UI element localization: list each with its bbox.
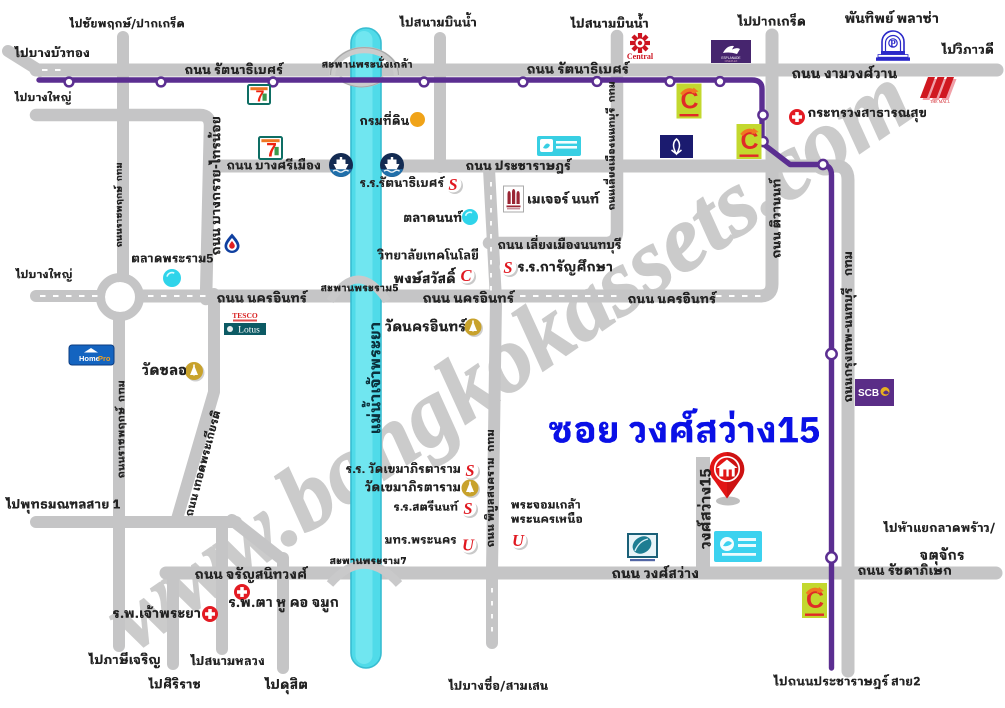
svg-text:S: S xyxy=(503,258,512,277)
svg-text:Home: Home xyxy=(79,354,100,363)
svg-text:THE MALL: THE MALL xyxy=(930,99,951,104)
svg-text:S: S xyxy=(463,499,472,518)
svg-text:C: C xyxy=(460,266,472,285)
svg-text:Central: Central xyxy=(627,52,654,61)
svg-text:CINEPLEX: CINEPLEX xyxy=(725,59,738,63)
svg-text:U: U xyxy=(462,536,475,555)
svg-text:Lotus: Lotus xyxy=(238,326,260,336)
svg-text:S: S xyxy=(448,175,457,194)
svg-text:TESCO: TESCO xyxy=(232,311,258,320)
svg-text:P: P xyxy=(890,39,896,49)
svg-text:Pro: Pro xyxy=(98,354,111,363)
svg-text:U: U xyxy=(512,531,525,550)
svg-text:S: S xyxy=(465,461,474,480)
svg-text:SCB: SCB xyxy=(858,388,879,399)
